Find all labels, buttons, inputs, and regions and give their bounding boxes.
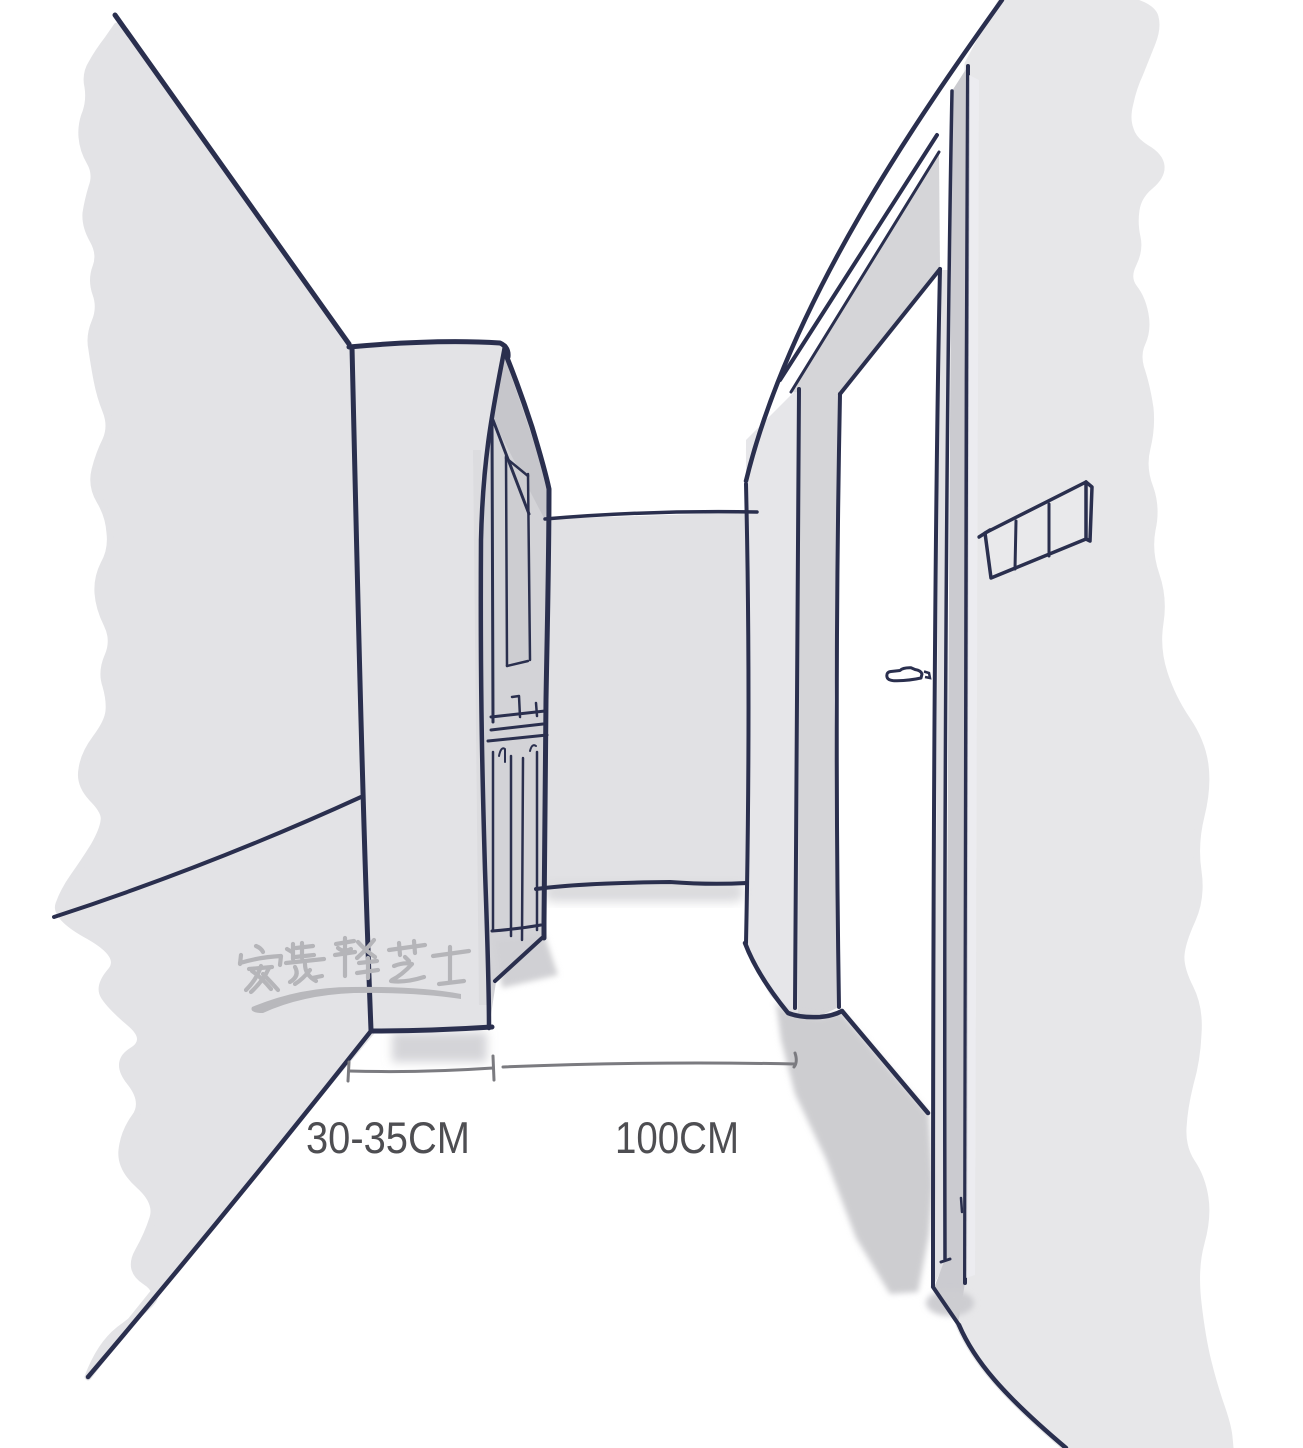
svg-text:100CM: 100CM [615, 1114, 739, 1163]
svg-text:30-35CM: 30-35CM [306, 1114, 470, 1163]
